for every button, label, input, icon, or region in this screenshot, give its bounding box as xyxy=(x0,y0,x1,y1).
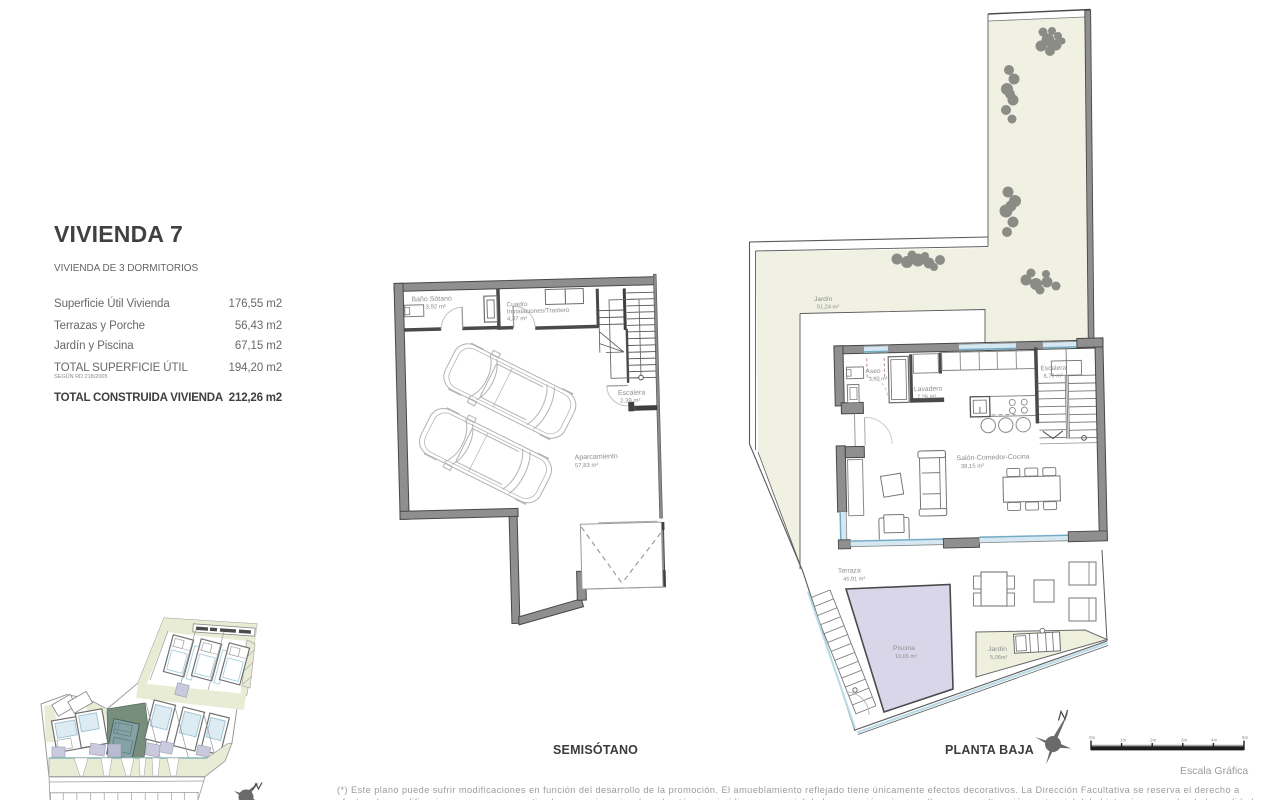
svg-text:39,15 m²: 39,15 m² xyxy=(961,464,985,471)
svg-text:Lavadero: Lavadero xyxy=(914,386,943,394)
svg-text:Escalera: Escalera xyxy=(1040,365,1066,373)
svg-text:8,70 m²: 8,70 m² xyxy=(1044,373,1063,379)
svg-text:45,91 m²: 45,91 m² xyxy=(843,576,865,583)
svg-text:Piscina: Piscina xyxy=(893,645,915,652)
svg-text:4,37 m²: 4,37 m² xyxy=(507,316,527,323)
svg-text:57,83 m²: 57,83 m² xyxy=(575,463,599,470)
svg-text:Instalaciones/Trastero: Instalaciones/Trastero xyxy=(507,307,570,316)
svg-text:Baño Sótano: Baño Sótano xyxy=(411,295,452,303)
svg-text:7,26 m²: 7,26 m² xyxy=(917,394,936,400)
svg-text:Jardín: Jardín xyxy=(814,296,833,303)
svg-text:4m: 4m xyxy=(1211,738,1218,743)
svg-text:2m: 2m xyxy=(1150,738,1157,743)
svg-text:51,24 m²: 51,24 m² xyxy=(817,305,839,311)
svg-text:3,30 m²: 3,30 m² xyxy=(869,376,888,382)
svg-text:3,92 m²: 3,92 m² xyxy=(426,304,446,311)
svg-text:2,39 m²: 2,39 m² xyxy=(620,398,640,405)
svg-text:Aparcamiento: Aparcamiento xyxy=(575,453,618,461)
svg-text:5,06m²: 5,06m² xyxy=(990,655,1008,661)
svg-text:1m: 1m xyxy=(1120,738,1127,743)
svg-text:3m: 3m xyxy=(1181,738,1188,743)
svg-text:Jardín: Jardín xyxy=(988,646,1007,653)
svg-text:Escala Gráfica: Escala Gráfica xyxy=(1180,765,1248,777)
svg-text:10,65 m²: 10,65 m² xyxy=(895,654,917,660)
svg-text:Salón-Comedor-Cocina: Salón-Comedor-Cocina xyxy=(956,454,1029,463)
svg-text:Aseo: Aseo xyxy=(865,368,881,375)
svg-text:0m: 0m xyxy=(1089,735,1096,740)
svg-text:Escalera: Escalera xyxy=(618,389,646,397)
svg-text:5m: 5m xyxy=(1242,735,1249,740)
svg-text:Terraza: Terraza xyxy=(838,567,861,575)
